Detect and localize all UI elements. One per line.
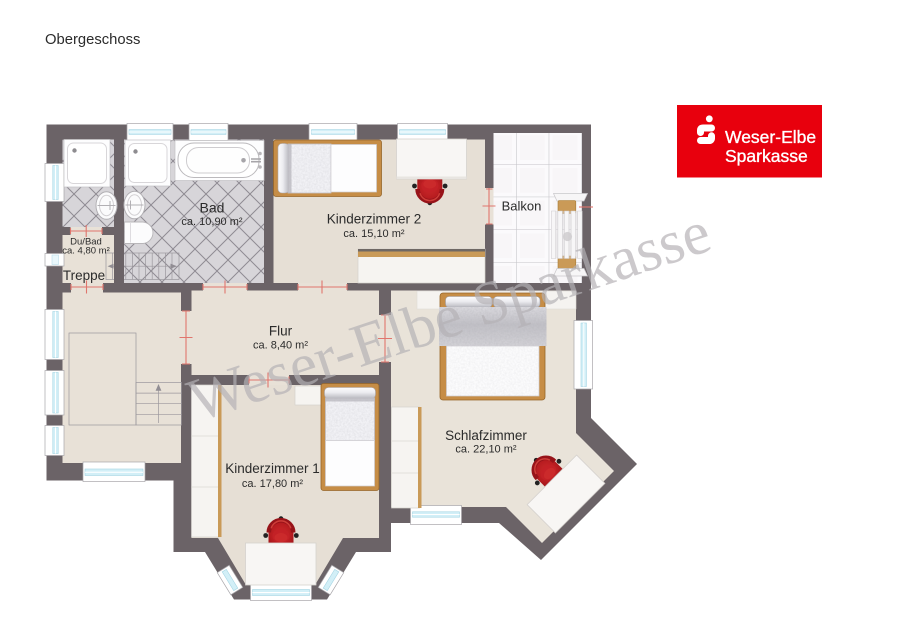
svg-text:Treppe: Treppe xyxy=(63,268,105,283)
svg-text:Schlafzimmer: Schlafzimmer xyxy=(445,428,527,443)
svg-text:Bad: Bad xyxy=(200,200,225,216)
svg-text:ca. 4,80 m²: ca. 4,80 m² xyxy=(62,246,110,257)
svg-text:Balkon: Balkon xyxy=(502,199,542,214)
svg-text:ca. 17,80 m²: ca. 17,80 m² xyxy=(242,478,303,490)
svg-text:ca. 22,10 m²: ca. 22,10 m² xyxy=(455,444,516,456)
svg-text:Sparkasse: Sparkasse xyxy=(725,146,808,166)
svg-text:Obergeschoss: Obergeschoss xyxy=(45,32,140,48)
svg-text:Kinderzimmer 1: Kinderzimmer 1 xyxy=(225,461,320,476)
svg-text:Kinderzimmer 2: Kinderzimmer 2 xyxy=(327,212,422,227)
svg-text:ca. 10,90 m²: ca. 10,90 m² xyxy=(181,216,242,228)
svg-text:Weser-Elbe: Weser-Elbe xyxy=(725,127,816,147)
svg-text:ca. 15,10 m²: ca. 15,10 m² xyxy=(343,228,404,240)
